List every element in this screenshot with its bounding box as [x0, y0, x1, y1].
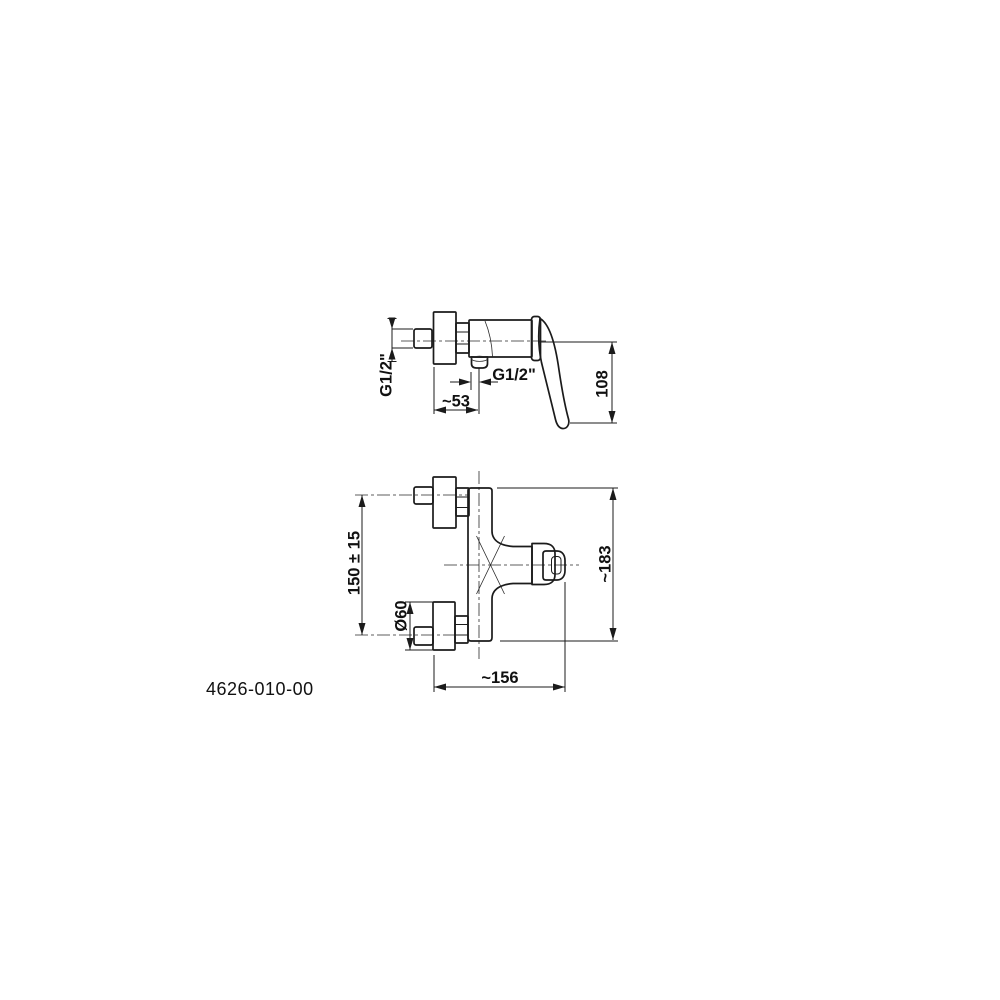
dim-connection-spacing-label: 150 ± 15 — [346, 531, 364, 595]
dim-wall-to-outlet-label: ~53 — [442, 393, 470, 411]
dim-overall-height: ~183 — [497, 488, 618, 641]
mixer-body — [469, 320, 532, 357]
dim-handle-drop: 108 — [538, 342, 617, 423]
upper-hex-nut-facets — [456, 497, 469, 508]
dim-inlet-thread-label: G1/2" — [378, 353, 396, 397]
mixer-body-front — [468, 488, 532, 641]
dim-overall-depth: ~156 — [434, 582, 565, 692]
dim-flange-diameter-label: Ø60 — [393, 600, 411, 631]
upper-hex-nut — [456, 488, 469, 516]
mixer-body-contour — [485, 321, 493, 357]
dim-overall-height-label: ~183 — [597, 545, 615, 582]
hex-nut — [456, 323, 469, 353]
dim-outlet-thread-label: G1/2" — [492, 366, 536, 384]
shower-outlet — [472, 357, 488, 368]
lower-wall-flange — [433, 602, 455, 650]
drawing-svg: G1/2" G1/2" ~53 108 — [0, 0, 1000, 1000]
lower-hex-nut — [455, 616, 468, 643]
product-code: 4626-010-00 — [206, 679, 314, 699]
lower-hex-nut-facets — [455, 625, 468, 636]
handle-lever — [539, 319, 569, 429]
dim-handle-drop-label: 108 — [594, 370, 612, 398]
wall-flange — [434, 312, 457, 364]
dim-connection-spacing: 150 ± 15 — [346, 495, 366, 635]
dim-overall-depth-label: ~156 — [481, 669, 518, 687]
inlet-pipe — [414, 329, 432, 348]
side-view: G1/2" G1/2" ~53 108 — [378, 312, 618, 429]
lower-inlet-pipe — [414, 627, 433, 645]
handle-grip-front — [543, 551, 565, 580]
hex-nut-facets — [456, 332, 469, 344]
upper-inlet-pipe — [414, 487, 433, 504]
technical-drawing: G1/2" G1/2" ~53 108 — [0, 0, 1000, 1000]
front-view: 150 ± 15 Ø60 ~183 ~156 — [346, 471, 619, 692]
upper-wall-flange — [433, 477, 456, 528]
dim-inlet-thread: G1/2" — [378, 318, 414, 397]
